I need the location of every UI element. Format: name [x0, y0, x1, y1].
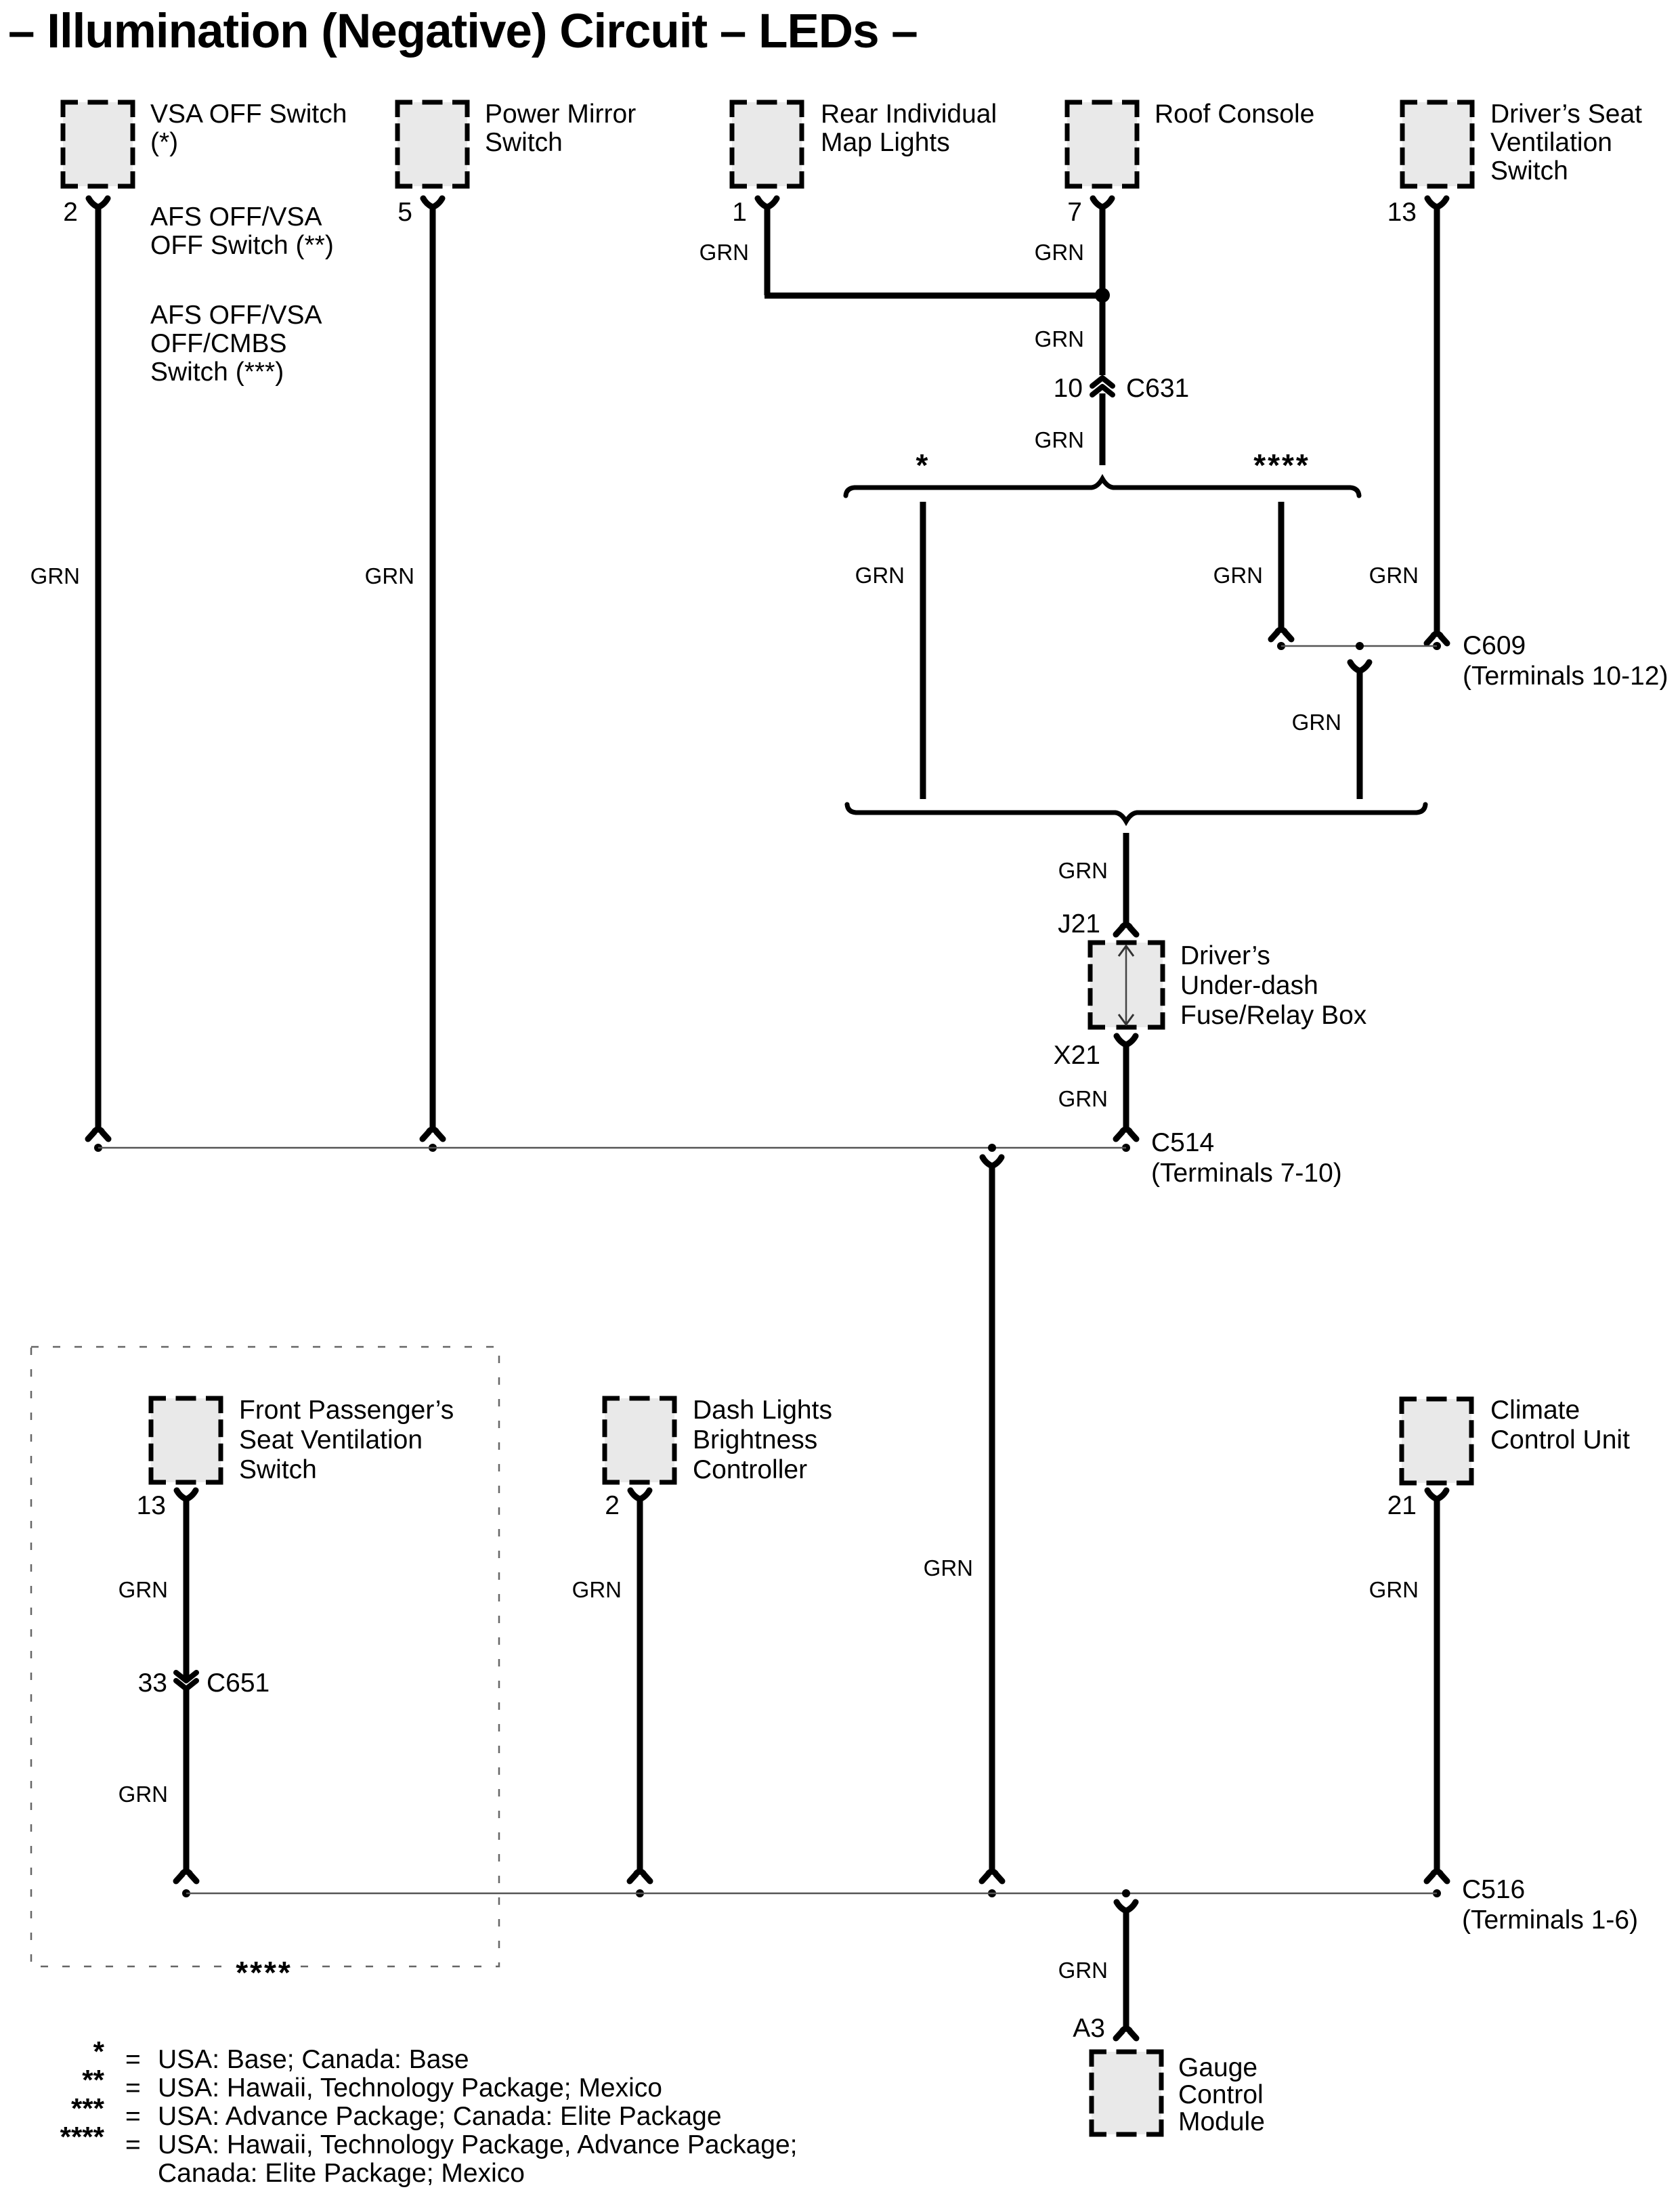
- svg-text:Gauge: Gauge: [1178, 2053, 1257, 2082]
- svg-text:Power Mirror: Power Mirror: [485, 100, 636, 129]
- svg-text:GRN: GRN: [855, 563, 905, 588]
- svg-text:Under-dash: Under-dash: [1180, 971, 1318, 1000]
- svg-text:GRN: GRN: [572, 1577, 622, 1602]
- svg-text:=: =: [125, 2045, 141, 2074]
- svg-text:Seat Ventilation: Seat Ventilation: [239, 1425, 423, 1455]
- svg-text:21: 21: [1387, 1491, 1417, 1520]
- svg-text:GRN: GRN: [1035, 427, 1084, 452]
- svg-text:USA: Advance Package; Canada:: USA: Advance Package; Canada: Elite Pack…: [158, 2102, 722, 2131]
- svg-text:GRN: GRN: [365, 563, 414, 588]
- svg-text:USA: Base; Canada: Base: USA: Base; Canada: Base: [158, 2045, 469, 2074]
- svg-text:(Terminals 1-6): (Terminals 1-6): [1462, 1906, 1638, 1935]
- svg-text:2: 2: [605, 1491, 620, 1520]
- svg-text:Climate: Climate: [1490, 1396, 1580, 1425]
- svg-text:– Illumination (Negative) Circ: – Illumination (Negative) Circuit – LEDs…: [8, 5, 918, 58]
- svg-text:GRN: GRN: [119, 1577, 168, 1602]
- svg-text:****: ****: [60, 2121, 105, 2153]
- svg-text:Roof Console: Roof Console: [1155, 100, 1314, 129]
- svg-text:33: 33: [138, 1668, 167, 1698]
- svg-text:Switch: Switch: [239, 1455, 317, 1484]
- svg-text:GRN: GRN: [699, 240, 749, 265]
- svg-text:USA: Hawaii, Technology Packag: USA: Hawaii, Technology Package; Mexico: [158, 2073, 662, 2103]
- svg-text:1: 1: [732, 198, 747, 227]
- svg-text:A3: A3: [1073, 2014, 1105, 2043]
- svg-text:Switch (***): Switch (***): [150, 358, 284, 387]
- svg-text:OFF Switch (**): OFF Switch (**): [150, 231, 334, 260]
- svg-text:GRN: GRN: [1369, 1577, 1419, 1602]
- svg-text:13: 13: [1387, 198, 1417, 227]
- svg-text:GRN: GRN: [1035, 240, 1084, 265]
- svg-text:(Terminals 7-10): (Terminals 7-10): [1151, 1159, 1342, 1188]
- svg-text:2: 2: [63, 198, 78, 227]
- svg-text:=: =: [125, 2130, 141, 2159]
- svg-text:X21: X21: [1054, 1041, 1100, 1070]
- svg-text:OFF/CMBS: OFF/CMBS: [150, 329, 287, 358]
- svg-text:GRN: GRN: [924, 1555, 973, 1580]
- svg-text:*: *: [93, 2036, 105, 2067]
- svg-text:Dash Lights: Dash Lights: [693, 1396, 832, 1425]
- svg-text:Module: Module: [1178, 2107, 1265, 2136]
- svg-text:Control Unit: Control Unit: [1490, 1425, 1630, 1455]
- svg-text:=: =: [125, 2073, 141, 2103]
- svg-text:13: 13: [137, 1491, 166, 1520]
- svg-text:GRN: GRN: [30, 563, 80, 588]
- svg-text:Ventilation: Ventilation: [1490, 128, 1612, 157]
- svg-text:VSA OFF Switch: VSA OFF Switch: [150, 100, 347, 129]
- svg-text:Switch: Switch: [1490, 156, 1568, 186]
- svg-text:GRN: GRN: [1058, 1086, 1108, 1111]
- svg-text:C514: C514: [1151, 1128, 1214, 1157]
- svg-text:USA: Hawaii, Technology Packag: USA: Hawaii, Technology Package, Advance…: [158, 2130, 798, 2159]
- svg-text:(Terminals 10-12): (Terminals 10-12): [1463, 662, 1668, 691]
- svg-text:Controller: Controller: [693, 1455, 807, 1484]
- svg-text:Switch: Switch: [485, 128, 563, 157]
- svg-text:Map Lights: Map Lights: [821, 128, 950, 157]
- svg-text:GRN: GRN: [1035, 326, 1084, 351]
- svg-text:*: *: [916, 448, 930, 483]
- svg-text:**: **: [82, 2064, 104, 2096]
- svg-text:C631: C631: [1126, 374, 1189, 403]
- svg-text:=: =: [125, 2102, 141, 2131]
- svg-text:****: ****: [236, 1955, 293, 1990]
- svg-text:C609: C609: [1463, 631, 1526, 660]
- svg-text:AFS OFF/VSA: AFS OFF/VSA: [150, 301, 322, 330]
- svg-text:GRN: GRN: [1369, 563, 1419, 588]
- svg-text:J21: J21: [1058, 909, 1100, 939]
- svg-text:GRN: GRN: [119, 1782, 168, 1807]
- svg-text:Driver’s: Driver’s: [1180, 941, 1270, 970]
- svg-text:AFS OFF/VSA: AFS OFF/VSA: [150, 202, 322, 232]
- svg-text:7: 7: [1067, 198, 1082, 227]
- svg-text:C651: C651: [207, 1668, 270, 1698]
- svg-text:5: 5: [397, 198, 412, 227]
- svg-text:Brightness: Brightness: [693, 1425, 817, 1455]
- svg-text:GRN: GRN: [1292, 710, 1341, 735]
- svg-text:GRN: GRN: [1213, 563, 1263, 588]
- svg-text:Front Passenger’s: Front Passenger’s: [239, 1396, 454, 1425]
- svg-text:Driver’s Seat: Driver’s Seat: [1490, 100, 1642, 129]
- svg-text:GRN: GRN: [1058, 1958, 1108, 1983]
- svg-text:GRN: GRN: [1058, 858, 1108, 883]
- svg-text:****: ****: [1253, 448, 1310, 483]
- svg-text:Fuse/Relay Box: Fuse/Relay Box: [1180, 1001, 1367, 1030]
- svg-text:(*): (*): [150, 128, 178, 157]
- svg-text:Canada: Elite Package; Mexico: Canada: Elite Package; Mexico: [158, 2159, 525, 2188]
- svg-text:C516: C516: [1462, 1875, 1525, 1904]
- svg-text:Control: Control: [1178, 2080, 1264, 2109]
- svg-text:***: ***: [71, 2092, 105, 2124]
- svg-text:Rear Individual: Rear Individual: [821, 100, 997, 129]
- svg-text:10: 10: [1054, 374, 1083, 403]
